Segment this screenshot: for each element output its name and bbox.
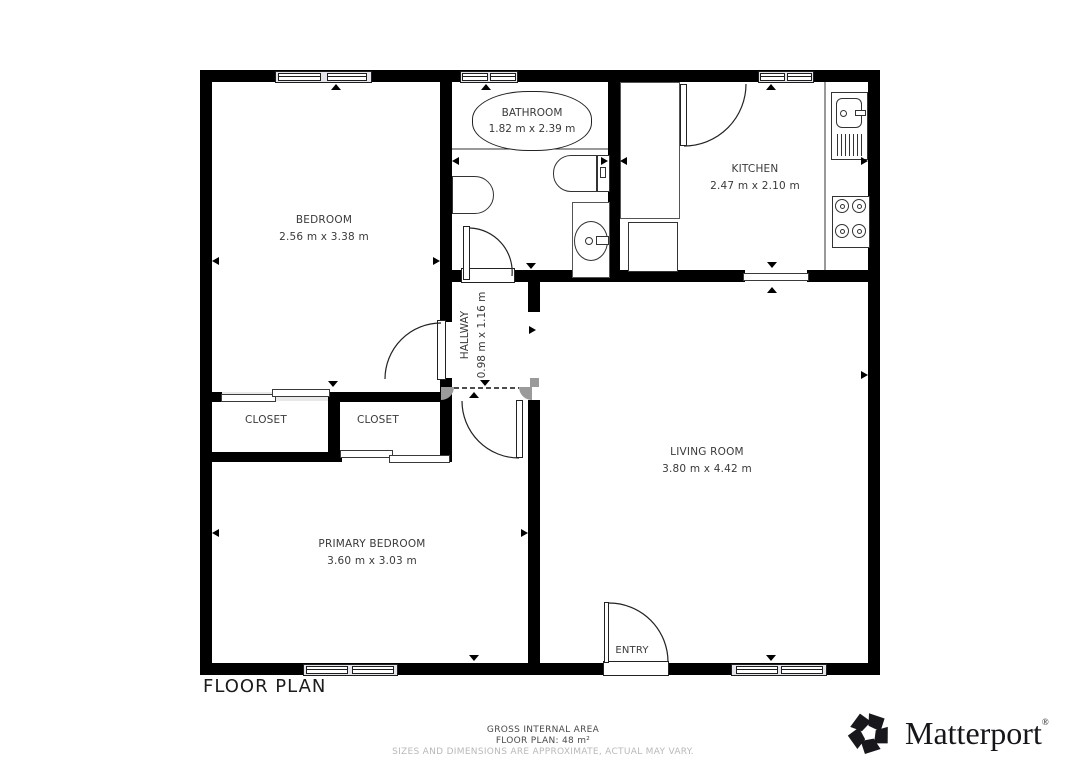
door-leaf-entry (604, 602, 609, 663)
floor-plan-canvas: BEDROOM 2.56 m x 3.38 m BATHROOM 1.82 m … (0, 0, 1086, 768)
marker-stub (526, 263, 536, 269)
room-label-living-room: LIVING ROOM 3.80 m x 4.42 m (662, 444, 752, 478)
room-dims: 1.82 m x 2.39 m (473, 121, 591, 137)
room-label-bathroom: BATHROOM 1.82 m x 2.39 m (472, 91, 592, 151)
marker-window-bedroom (331, 84, 341, 90)
bathroom-sink-drain (585, 237, 593, 245)
kitchen-drainboard (837, 134, 862, 156)
door-leaf-bedroom (437, 320, 446, 380)
plan-title: FLOOR PLAN (203, 676, 326, 697)
marker-bathroom-left (452, 157, 459, 165)
doorway-cap-square (530, 378, 539, 387)
room-dims: 3.60 m x 3.03 m (318, 553, 425, 570)
room-label-primary-bedroom: PRIMARY BEDROOM 3.60 m x 3.03 m (318, 536, 425, 570)
matterport-logo: Matterport® (843, 707, 1049, 759)
room-name: BATHROOM (473, 105, 591, 121)
room-dims: 2.56 m x 3.38 m (279, 229, 369, 246)
marker-bedroom-left (212, 257, 219, 265)
marker-kitchen-slider-bottom (767, 287, 777, 293)
doorway-cap-left (441, 387, 454, 400)
sliding-door-kitchen (743, 273, 809, 281)
door-leaf-bathroom (463, 226, 470, 280)
marker-living-right (861, 371, 868, 379)
sliding-door-closet-left-panel (221, 394, 276, 402)
window-pane (462, 73, 488, 81)
door-arc-bedroom (385, 323, 441, 379)
marker-bedroom-right (433, 257, 440, 265)
bathroom-sink-tap (596, 236, 609, 245)
room-label-bedroom: BEDROOM 2.56 m x 3.38 m (279, 212, 369, 246)
window-pane (736, 666, 778, 674)
marker-kitchen-slider-top (767, 262, 777, 268)
marker-kitchen-right (861, 157, 868, 165)
door-leaf-kitchen (680, 84, 687, 146)
threshold-entry-door (603, 661, 669, 676)
wall-hallway-living-stub (528, 282, 540, 312)
room-name: BEDROOM (279, 212, 369, 229)
marker-window-kitchen (766, 84, 776, 90)
marker-bottom-primary (469, 655, 479, 661)
sliding-door-closet-left-panel (272, 389, 330, 397)
room-label-entry: ENTRY (615, 642, 648, 659)
stove-burner (852, 224, 866, 238)
wall-bedroom-hallway-upper (440, 82, 452, 322)
matterport-wordmark: Matterport® (905, 707, 1049, 759)
room-label-closet-left: CLOSET (245, 412, 287, 429)
kitchen-tall-cabinet (620, 82, 680, 219)
stove-burner (852, 199, 866, 213)
marker-closet (328, 381, 338, 387)
window-pane (760, 73, 785, 81)
marker-hallway-opening (529, 326, 536, 334)
door-arc-kitchen (684, 84, 746, 146)
wall-left (200, 70, 212, 675)
marker-primary-left (212, 529, 219, 537)
window-pane (278, 73, 321, 81)
room-name: CLOSET (357, 412, 399, 429)
kitchen-sink-tap (855, 110, 866, 116)
room-label-kitchen: KITCHEN 2.47 m x 2.10 m (710, 161, 800, 195)
marker-window-bathroom (481, 84, 491, 90)
room-name: LIVING ROOM (662, 444, 752, 461)
marker-primary-right (521, 529, 528, 537)
wall-closet-top-right (328, 392, 452, 402)
kitchen-sink-drain (840, 110, 847, 117)
sliding-door-closet-right-panel (389, 455, 450, 463)
room-label-closet-right: CLOSET (357, 412, 399, 429)
wall-right (868, 70, 880, 675)
marker-bottom-living (766, 655, 776, 661)
window-pane (781, 666, 823, 674)
stove-burner (835, 224, 849, 238)
room-dims: 0.98 m x 1.16 m (474, 275, 491, 395)
room-name: ENTRY (615, 642, 648, 659)
room-name: CLOSET (245, 412, 287, 429)
refrigerator (628, 222, 678, 272)
toilet-flush-button (600, 167, 606, 178)
door-leaf-primary-bedroom (516, 400, 523, 458)
doorway-cap-right (519, 387, 532, 400)
matterport-pinwheel-icon (843, 707, 895, 759)
toilet-bowl (553, 155, 597, 192)
window-pane (327, 73, 367, 81)
window-pane (490, 73, 516, 81)
window-pane (306, 666, 348, 674)
room-name: HALLWAY (457, 275, 474, 395)
sliding-door-closet-right-panel (340, 450, 393, 458)
stove-burner (835, 199, 849, 213)
door-arc-primary-bedroom (462, 401, 519, 458)
wall-primary-living (528, 400, 540, 663)
room-name: PRIMARY BEDROOM (318, 536, 425, 553)
window-pane (352, 666, 394, 674)
marker-kitchen-left (620, 157, 627, 165)
wall-closet-bottom (212, 452, 342, 462)
bathtub (452, 176, 494, 214)
room-dims: 3.80 m x 4.42 m (662, 461, 752, 478)
room-dims: 2.47 m x 2.10 m (710, 178, 800, 195)
marker-bathroom-right (601, 157, 608, 165)
room-label-hallway: HALLWAY 0.98 m x 1.16 m (457, 275, 497, 395)
registered-trademark: ® (1042, 717, 1049, 727)
window-pane (787, 73, 812, 81)
room-name: KITCHEN (710, 161, 800, 178)
